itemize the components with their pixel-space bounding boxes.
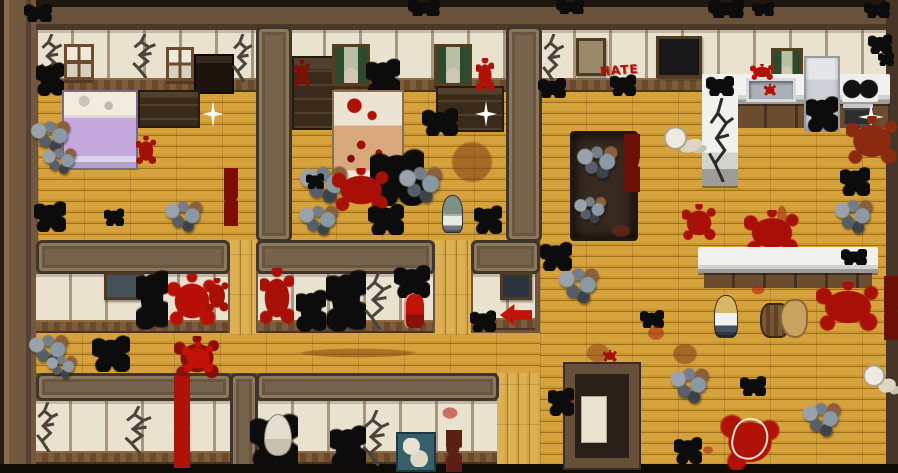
crow-silhouette <box>878 52 894 66</box>
blood-pool <box>182 342 214 374</box>
curtained-window <box>332 44 370 86</box>
black-stain <box>841 249 867 265</box>
crow-silhouette <box>556 0 584 14</box>
black-stain <box>330 422 366 470</box>
black-stain <box>806 94 838 132</box>
crow-silhouette <box>864 2 890 18</box>
rubble-pile <box>574 143 620 179</box>
black-rock <box>474 204 502 234</box>
black-stain <box>394 264 430 298</box>
stove-burners[interactable] <box>842 76 878 102</box>
crow-silhouette <box>408 0 440 16</box>
chalk-outline-blood <box>720 408 780 470</box>
toppled-barrel[interactable] <box>760 296 808 340</box>
wall-crack <box>132 34 158 78</box>
blood-splatter <box>294 60 310 88</box>
counter-crack <box>708 98 736 182</box>
black-stain <box>92 334 130 372</box>
rubble-pile <box>668 364 710 404</box>
rubble-pile <box>832 196 874 234</box>
blood-splatter <box>136 136 156 166</box>
blood-streak <box>224 168 238 226</box>
wall-crack <box>124 406 154 454</box>
black-stain <box>36 60 64 96</box>
rubble-pile <box>396 163 444 203</box>
blood-spots <box>206 278 228 314</box>
rubble-pile <box>162 198 204 232</box>
crow-silhouette <box>868 34 892 54</box>
black-stain <box>368 203 404 235</box>
divider-h2b <box>471 240 540 274</box>
floor-hole <box>34 200 66 232</box>
rust-specks <box>268 346 448 360</box>
dark-smear <box>446 430 462 472</box>
red-scribble <box>438 404 462 422</box>
blood-splatter <box>816 282 880 332</box>
blood-splatter <box>750 64 774 80</box>
white-jar[interactable] <box>264 414 292 456</box>
rubble-pile <box>296 203 340 235</box>
crow-silhouette <box>24 4 52 22</box>
small-painting <box>500 272 532 300</box>
player-character[interactable] <box>442 195 463 233</box>
blood-spots <box>260 268 294 328</box>
window <box>166 47 194 81</box>
npc-character[interactable] <box>714 295 738 338</box>
corridor-1-floor <box>230 240 256 335</box>
rubble-pile <box>40 146 78 174</box>
divider-b-hall <box>506 26 542 242</box>
red-figure <box>404 294 424 328</box>
rubble-pile <box>44 354 78 378</box>
red-mark <box>643 322 669 344</box>
blood-splatter <box>603 350 617 362</box>
wall-crack <box>36 402 60 452</box>
crow-silhouette <box>708 0 744 18</box>
rubble-pile <box>572 194 608 224</box>
window <box>64 44 94 80</box>
wall-crack <box>364 272 394 330</box>
blood-spots <box>682 204 716 242</box>
black-stain <box>470 310 496 332</box>
black-crack <box>538 78 566 98</box>
wall-crack <box>362 410 392 466</box>
vanity-dresser <box>138 90 200 128</box>
alcove-doorway[interactable] <box>565 364 639 468</box>
curtained-window <box>434 44 472 86</box>
rust-smear <box>440 130 504 194</box>
frame-top-line <box>0 24 898 30</box>
wall-crack <box>542 34 566 84</box>
dried-blood-splat <box>846 116 898 166</box>
storage-shelf[interactable] <box>396 432 436 472</box>
black-rock <box>548 386 574 416</box>
blood-trail <box>174 376 190 468</box>
blood-splatter <box>764 84 776 96</box>
wall-hole <box>326 264 366 332</box>
blood-streak <box>624 134 640 192</box>
divider-a-b <box>256 26 292 242</box>
dark-cabinet <box>194 54 234 94</box>
divider-h3b <box>256 373 499 401</box>
black-stain <box>104 208 124 226</box>
counter-hole <box>706 76 734 96</box>
red-mark <box>748 283 768 297</box>
game-viewport[interactable]: HATE <box>0 0 898 473</box>
black-stain <box>296 286 326 332</box>
black-rock <box>840 166 870 196</box>
black-stain <box>674 436 702 464</box>
black-stain <box>136 264 168 330</box>
divider-h1 <box>36 240 230 274</box>
rust-smear <box>606 222 636 240</box>
blood-streak <box>884 276 898 340</box>
rubble-pile <box>556 264 600 304</box>
crow-silhouette <box>752 2 774 16</box>
blood-splatter <box>476 58 494 94</box>
dark-painting <box>656 36 702 78</box>
black-stain <box>740 376 766 396</box>
black-stain <box>422 108 458 136</box>
rubble-pile <box>800 399 842 437</box>
wall-crack <box>232 34 254 82</box>
frame-left <box>0 0 36 473</box>
blood-spots <box>700 444 716 456</box>
black-stain <box>610 74 636 96</box>
corridor-3-floor <box>497 373 540 465</box>
corridor-2-floor <box>435 240 471 335</box>
black-stain <box>306 173 324 189</box>
